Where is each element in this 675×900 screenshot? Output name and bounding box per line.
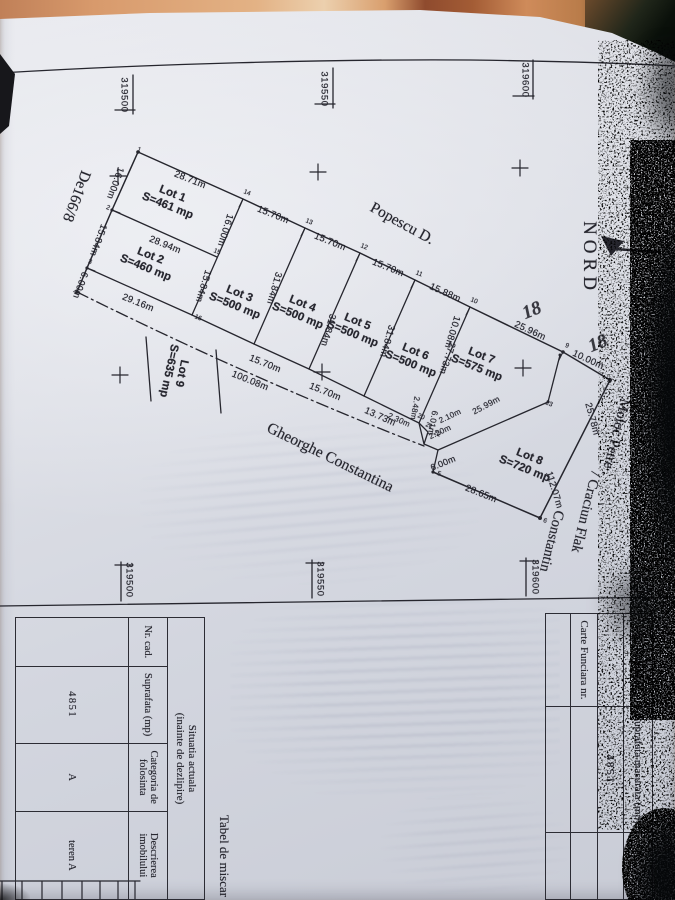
lot-label: Lot 5S=500 mp xyxy=(325,306,384,349)
photo-of-cadastral-plan: NORD319600319550319500319600319550319500… xyxy=(0,0,675,900)
coord-label: 319550 xyxy=(315,561,326,596)
dim-label: 6.00m xyxy=(429,453,457,472)
corner-label: 23 xyxy=(544,399,553,408)
corner-label: 14 xyxy=(242,188,251,197)
col-header-nr-cad: Nr. cad. xyxy=(129,618,168,667)
corner-label: 9 xyxy=(564,342,570,350)
dim-label: 15.70m xyxy=(248,353,283,376)
coord-label: 319550 xyxy=(319,71,330,106)
dim-label: 15.70m xyxy=(308,381,343,404)
dim-label: 15.84m xyxy=(87,223,109,258)
lot-label: Lot 4S=500 mp xyxy=(270,288,329,331)
coord-label: 319600 xyxy=(520,62,531,97)
dim-label: 25.99m xyxy=(470,394,501,417)
dim-label: 16.00m xyxy=(104,166,126,201)
value-categoria: A xyxy=(16,743,129,811)
corner-label: 1 xyxy=(136,146,142,154)
name-label: Moloc Petre . xyxy=(597,397,632,477)
reg-value-suprafata: 4851 xyxy=(598,706,624,832)
situatia-actuala-line2: (inainte de dezlipire) xyxy=(174,619,186,898)
name-label: Constantin xyxy=(535,508,567,573)
situatia-actuala-line1: Situatia actuala xyxy=(186,619,198,898)
corner-label: 12 xyxy=(359,242,368,251)
corner-label: 15 xyxy=(212,247,221,256)
name-label: Gheorghe Constantina xyxy=(264,419,397,496)
cadastral-register-table: Nr. cadastral Suprafata masurata (mp) 48… xyxy=(545,613,653,900)
coord-label: 319500 xyxy=(119,77,130,112)
value-nr-cad xyxy=(16,618,129,667)
dim-label: 28.71m xyxy=(173,169,208,192)
reg-header-carte-funciara: Carte Funciara nr. xyxy=(571,614,598,707)
corner-label: 3 xyxy=(87,258,93,266)
rotated-document-layer: NORD319600319550319500319600319550319500… xyxy=(0,0,675,900)
corner-label: 13 xyxy=(304,217,313,226)
lot-label: Lot 9S=635 mp xyxy=(157,343,193,401)
dim-label: 25.78m xyxy=(582,402,601,437)
dim-label: 28.65m xyxy=(464,483,499,506)
lot-label: Lot 6S=500 mp xyxy=(383,336,442,379)
name-label: / Craciun Flak xyxy=(567,470,604,555)
dim-label: 15.88m xyxy=(428,281,463,305)
value-suprafata: 4851 xyxy=(16,666,129,743)
col-header-suprafata: Suprafata (mp) xyxy=(129,666,168,743)
corner-label: 16 xyxy=(193,313,202,322)
col-header-descrierea: Descrierea imobilului xyxy=(129,811,168,899)
value-descrierea: teren A xyxy=(16,811,129,899)
dim-label: 29.16m xyxy=(121,292,156,315)
parcel-movement-table: Situatia actuala (inainte de dezlipire) … xyxy=(15,617,205,900)
nord-label: NORD xyxy=(578,221,600,295)
corner-label: 5 xyxy=(436,470,442,478)
dim-label: 16.00m xyxy=(215,213,235,248)
dim-label: 100.08m xyxy=(230,369,270,394)
lot-label: Lot 7S=575 mp xyxy=(449,340,508,383)
shadow-corner xyxy=(0,884,30,900)
corner-label: 20 xyxy=(416,412,425,421)
lot-label: Lot 3S=500 mp xyxy=(207,278,266,321)
col-header-categoria: Categoria de folosinta xyxy=(129,743,168,811)
reg-header-nr-cadastral: Nr. cadastral xyxy=(624,614,653,707)
hand-label: 18 xyxy=(519,297,545,325)
dim-label: 2.10m xyxy=(437,407,462,425)
lot-label: Lot 8S=720 mp xyxy=(497,441,556,484)
corner-label: 2 xyxy=(105,204,111,212)
corner-label: 11 xyxy=(415,269,424,278)
dim-label: 15.70m xyxy=(371,257,406,280)
dim-label: 6.00m xyxy=(70,270,90,300)
movement-table-title: Tabel de miscar xyxy=(216,815,232,897)
paper-sheet: NORD319600319550319500319600319550319500… xyxy=(0,0,675,900)
coord-label: 319500 xyxy=(124,562,135,597)
corner-label: 10 xyxy=(469,296,478,305)
name-label: De166/8 xyxy=(58,168,94,224)
name-label: Popescu D. xyxy=(367,199,437,249)
reg-cell-empty xyxy=(624,832,653,899)
reg-header-suprafata: Suprafata masurata (mp) xyxy=(624,706,653,832)
dim-label: 15.70m xyxy=(313,231,348,254)
dim-label: 15.70m xyxy=(256,204,291,227)
